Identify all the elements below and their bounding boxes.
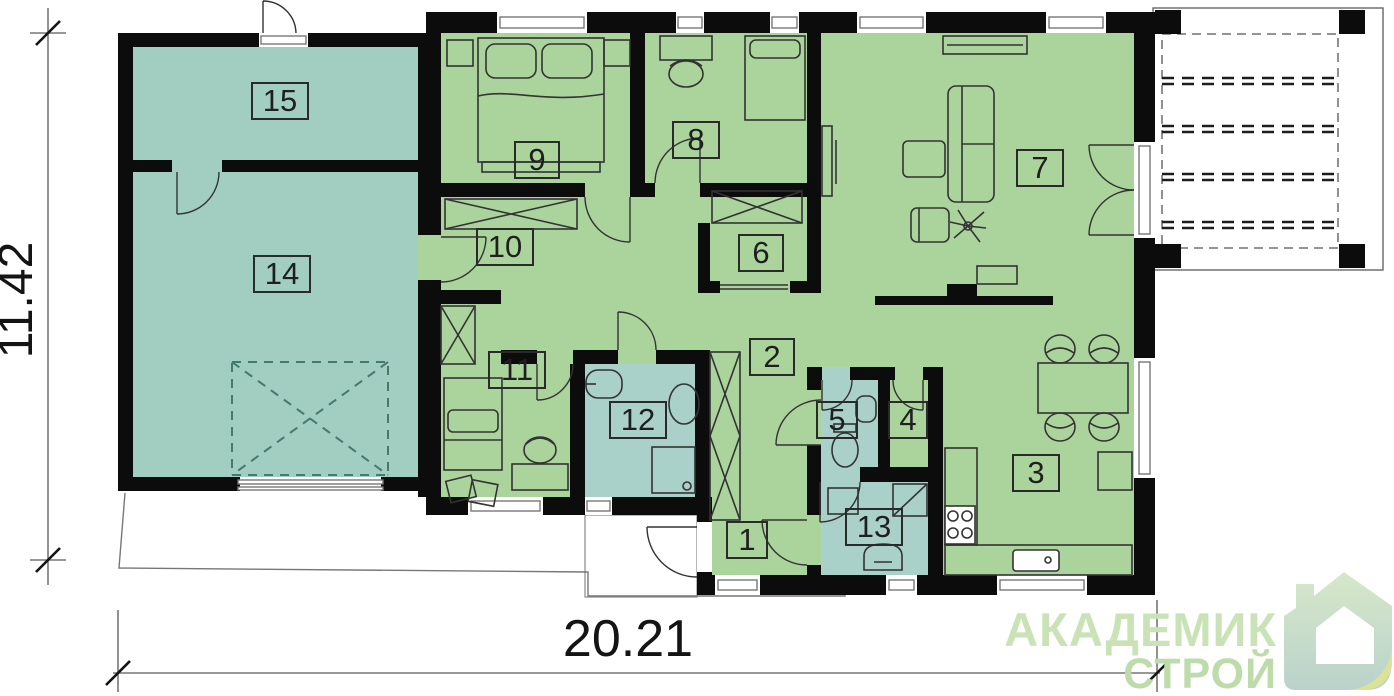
svg-text:1: 1	[738, 522, 755, 557]
terrace-post	[1339, 10, 1365, 34]
wall-bedrooms-hall	[441, 183, 821, 197]
wall-9-8	[630, 33, 645, 183]
svg-text:9: 9	[528, 142, 545, 177]
window	[676, 12, 704, 33]
wall-block-kitchen	[928, 367, 943, 575]
window	[770, 12, 799, 33]
svg-text:7: 7	[1031, 150, 1048, 185]
svg-text:14: 14	[265, 256, 299, 291]
svg-text:3: 3	[1027, 455, 1044, 490]
terrace	[1153, 8, 1383, 270]
terrace-door-opening	[1134, 142, 1155, 238]
room-8-area	[645, 33, 807, 183]
window	[497, 12, 587, 33]
svg-text:2: 2	[763, 339, 780, 374]
door-arc	[263, 1, 296, 33]
terrace-post	[1339, 244, 1365, 268]
window	[997, 575, 1087, 595]
floor-plan-page: 1 2 3 4 5 6 7 8 9 10 11 12 13 14 15 11.4…	[0, 0, 1394, 696]
floor-plan-drawing: 1 2 3 4 5 6 7 8 9 10 11 12 13 14 15 11.4…	[0, 0, 1394, 696]
logo-line2: СТРОЙ	[1123, 649, 1277, 696]
wall-12-hall	[695, 350, 710, 497]
terrace-post	[1155, 10, 1181, 34]
svg-text:5: 5	[828, 402, 845, 437]
wall-fireplace	[875, 296, 1053, 305]
garage-block	[118, 1, 432, 491]
room-1-area	[697, 497, 821, 575]
svg-text:8: 8	[687, 122, 704, 157]
dimension-height-label: 11.42	[0, 242, 43, 359]
room-14-area	[133, 172, 419, 477]
window	[585, 497, 612, 515]
window	[886, 575, 917, 595]
svg-text:6: 6	[752, 235, 769, 270]
dimension-height: 11.42	[0, 8, 66, 585]
window	[1134, 358, 1155, 478]
svg-text:13: 13	[857, 509, 891, 544]
terrace-post	[1155, 244, 1181, 268]
wall-11-12	[570, 364, 585, 497]
entrance-door-opening	[697, 522, 712, 572]
svg-text:11: 11	[501, 352, 533, 387]
window	[857, 12, 926, 33]
svg-text:4: 4	[899, 402, 916, 437]
window	[1046, 12, 1106, 33]
fireplace	[947, 284, 977, 296]
logo-line1: АКАДЕМИК	[1004, 603, 1277, 656]
wall-8-7	[807, 33, 821, 293]
dimension-width-label: 20.21	[563, 610, 693, 668]
stove-icon	[945, 506, 975, 544]
logo-house-icon	[1284, 572, 1392, 690]
window	[468, 497, 543, 515]
svg-text:12: 12	[621, 402, 655, 437]
window	[715, 575, 760, 595]
svg-text:15: 15	[263, 83, 297, 118]
kitchen-sink-icon	[1013, 550, 1059, 571]
svg-text:10: 10	[488, 229, 522, 264]
